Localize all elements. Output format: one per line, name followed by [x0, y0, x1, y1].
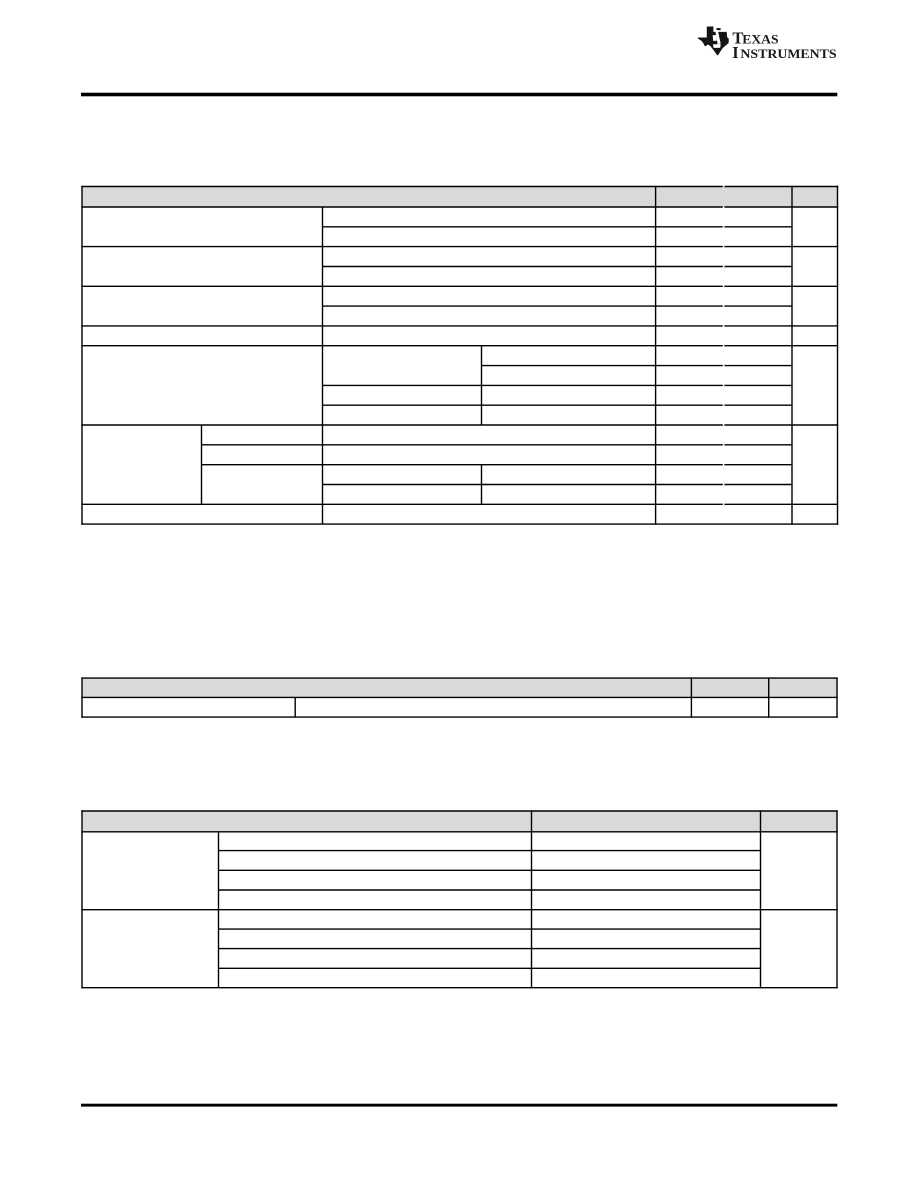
svg-text:EXAS: EXAS: [742, 33, 778, 47]
svg-text:I: I: [732, 43, 738, 62]
svg-text:NSTRUMENTS: NSTRUMENTS: [740, 47, 836, 61]
